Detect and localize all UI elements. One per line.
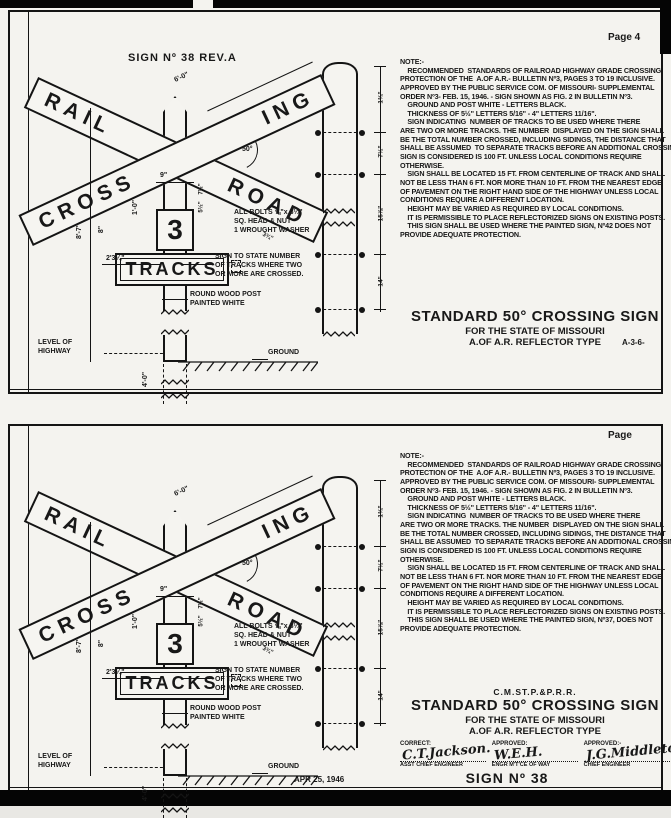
- break-symbol-icon: [161, 308, 189, 316]
- railroad-name: C.M.ST.P.&P.R.R.: [400, 687, 670, 697]
- title-block: C.M.ST.P.&P.R.R. STANDARD 50° CROSSING S…: [400, 687, 670, 786]
- dimension-label: 15⅞": [378, 203, 385, 225]
- dimension-label: 5½": [199, 201, 205, 212]
- ground-hatch-icon: [178, 774, 318, 787]
- dimension-label: 7½": [199, 183, 205, 194]
- break-symbol-icon: [161, 392, 189, 400]
- drawing-code: A-3-6-: [622, 338, 645, 347]
- bolt-row: [318, 254, 362, 255]
- dimension-line: [28, 426, 29, 790]
- scan-edge-artifact: [660, 0, 671, 54]
- bolts-note: ALL BOLTS ⅝"x 8¼" SQ. HEAD & NUT 1 WROUG…: [234, 622, 309, 649]
- dimension-label: 1'-0": [132, 200, 139, 215]
- bolts-note: ALL BOLTS ⅝"x 8¼" SQ. HEAD & NUT 1 WROUG…: [234, 208, 309, 235]
- dimension-line: [102, 678, 160, 679]
- ground-hatch-icon: [178, 360, 318, 373]
- dimension-label: 8": [98, 226, 105, 233]
- break-symbol-icon: [323, 220, 355, 228]
- approval-signatures: CORRECT: C.T.Jackson. ASST CHIEF ENGINEE…: [400, 741, 670, 768]
- bolt-row: [318, 668, 362, 669]
- scan-edge-artifact: [0, 790, 671, 806]
- scan-edge-artifact: [0, 0, 193, 8]
- dimension-label: 1¾": [378, 87, 385, 109]
- track-number-plate: 3: [156, 209, 194, 251]
- dimension-tick: [374, 132, 386, 133]
- leader-line: [162, 713, 188, 714]
- leader-line: [252, 359, 268, 360]
- dimension-label: 8": [98, 640, 105, 647]
- dimension-label: 7½": [378, 555, 385, 577]
- board-text-cross: CROSS: [35, 583, 140, 649]
- break-symbol-icon: [161, 378, 189, 386]
- dimension-line: [156, 182, 194, 183]
- drawing-title: STANDARD 50° CROSSING SIGN: [400, 308, 670, 325]
- notes-text: NOTE:- RECOMMENDED STANDARDS OF RAILROAD…: [400, 58, 668, 239]
- break-symbol-icon: [161, 722, 189, 730]
- drawing-title: STANDARD 50° CROSSING SIGN: [400, 697, 670, 714]
- leader-line: [182, 678, 213, 679]
- dimension-label: 14": [378, 685, 385, 707]
- track-number-plate: 3: [156, 623, 194, 665]
- break-symbol-icon: [323, 621, 355, 629]
- dimension-label: 9": [160, 172, 167, 179]
- dimension-label: 9": [160, 586, 167, 593]
- dimension-tick: [374, 309, 386, 310]
- drawing-subtitle: FOR THE STATE OF MISSOURI: [400, 326, 670, 337]
- track-count-note: SIGN TO STATE NUMBER OF TRACKS WHERE TWO…: [215, 666, 303, 693]
- break-symbol-icon: [323, 207, 355, 215]
- dimension-label: 5½": [199, 615, 205, 626]
- break-symbol-icon: [323, 744, 355, 752]
- dimension-label: 4'-0": [142, 786, 149, 801]
- dimension-label: 15⅞": [378, 617, 385, 639]
- dimension-line: [90, 108, 91, 362]
- tracks-plate: TRACKS: [115, 667, 229, 700]
- dimension-tick: [374, 588, 386, 589]
- dimension-label: 14": [378, 271, 385, 293]
- board-text-cross: CROSS: [35, 169, 140, 235]
- break-symbol-icon: [161, 742, 189, 750]
- scan-edge-artifact: [213, 0, 671, 8]
- bolt-row: [318, 588, 362, 589]
- dimension-line: [156, 596, 194, 597]
- dimension-label: 50°: [242, 560, 253, 567]
- dimension-label: 8'-7": [76, 224, 83, 239]
- break-symbol-icon: [161, 792, 189, 800]
- notes-text: NOTE:- RECOMMENDED STANDARDS OF RAILROAD…: [400, 452, 668, 633]
- dimension-line: [102, 264, 160, 265]
- dimension-tick: [374, 668, 386, 669]
- dimension-tick: [374, 254, 386, 255]
- dimension-tick: [374, 66, 386, 67]
- drawing-subtitle: FOR THE STATE OF MISSOURI: [400, 715, 670, 726]
- bolt-row: [318, 174, 362, 175]
- board-text-rail: RAIL: [40, 502, 116, 555]
- tracks-plate: TRACKS: [115, 253, 229, 286]
- correct-block: CORRECT: C.T.Jackson. ASST CHIEF ENGINEE…: [400, 741, 486, 768]
- bolt-row: [318, 723, 362, 724]
- dimension-label: 2'3¼": [106, 255, 125, 262]
- dimension-label: 7½": [199, 597, 205, 608]
- dimension-tick: [374, 546, 386, 547]
- break-symbol-icon: [323, 634, 355, 642]
- break-symbol-icon: [161, 328, 189, 336]
- highway-level-line: [104, 353, 168, 354]
- dimension-label: 6'-0": [173, 485, 190, 498]
- dimension-label: 8'-7": [76, 638, 83, 653]
- dimension-label: 2'3¼": [106, 669, 125, 676]
- highway-level-label: LEVEL OF HIGHWAY: [38, 752, 72, 770]
- dimension-tick: [374, 480, 386, 481]
- ground-label: GROUND: [268, 762, 299, 771]
- track-count-note: SIGN TO STATE NUMBER OF TRACKS WHERE TWO…: [215, 252, 303, 279]
- dimension-line: [28, 12, 29, 392]
- post-note: ROUND WOOD POST PAINTED WHITE: [190, 290, 261, 308]
- ground-label: GROUND: [268, 348, 299, 357]
- drawing-type: A.OF A.R. REFLECTOR TYPE: [400, 726, 670, 737]
- drawing-panel: Page 4 SIGN Nº 38 REV.A RAIL ROAD CROSS …: [8, 10, 663, 394]
- dimension-tick: [374, 723, 386, 724]
- approved-block: APPROVED:- J.G.Middleton CHIEF ENGINEER: [584, 741, 670, 768]
- dimension-tick: [374, 174, 386, 175]
- break-symbol-icon: [323, 330, 355, 338]
- leader-line: [182, 264, 213, 265]
- dimension-label: 6'-0": [173, 71, 190, 84]
- dimension-label: 7½": [378, 141, 385, 163]
- dimension-label: 1¾": [378, 501, 385, 523]
- bolt-row: [318, 546, 362, 547]
- approved-block: APPROVED: W.E.H. ENGR M'T'CE OF WAY: [492, 741, 578, 768]
- sign-number: SIGN Nº 38: [372, 770, 642, 786]
- leader-line: [252, 773, 268, 774]
- drawing-panel: Page RAIL ROAD CROSS ING 3 TRACKS 6'-0": [8, 424, 663, 792]
- board-text-rail: RAIL: [40, 88, 116, 141]
- leader-line: [162, 299, 188, 300]
- dimension-label: 50°: [242, 146, 253, 153]
- dimension-label: 1'-0": [132, 614, 139, 629]
- post-note: ROUND WOOD POST PAINTED WHITE: [190, 704, 261, 722]
- highway-level-line: [104, 767, 168, 768]
- bolt-row: [318, 132, 362, 133]
- dimension-label: 4'-0": [142, 372, 149, 387]
- bolt-row: [318, 309, 362, 310]
- break-symbol-icon: [161, 806, 189, 814]
- dimension-line: [90, 522, 91, 776]
- highway-level-label: LEVEL OF HIGHWAY: [38, 338, 72, 356]
